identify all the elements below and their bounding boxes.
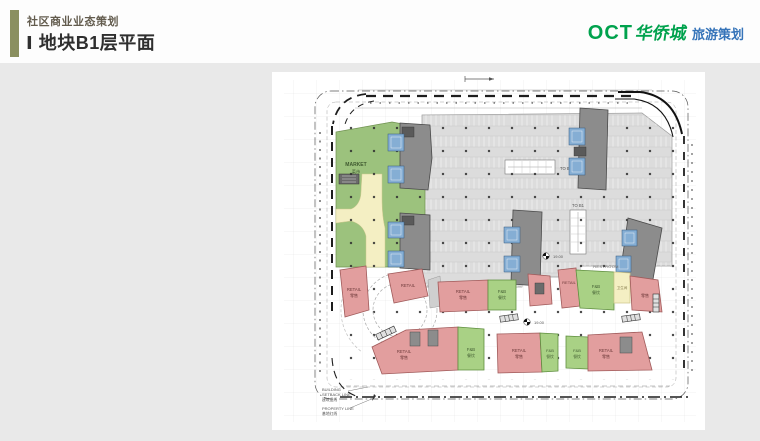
setback-line-label-cn: 建筑退线 — [322, 397, 337, 402]
logo-suffix-text: 旅游策划 — [692, 24, 744, 43]
retail-label-en: RETAIL — [562, 280, 576, 285]
retail-parcel — [497, 333, 542, 373]
retail-label-cn: 零售 — [459, 294, 467, 300]
fnb-label-en: F&B — [573, 348, 581, 353]
fnb-label-en: F&B — [467, 347, 475, 352]
parcel-row-lower: RETAIL 零售 F&B 餐饮 RETAIL 零售 F&B 餐饮 F&B 餐饮… — [372, 327, 652, 374]
retail-label-cn: 零售 — [641, 292, 649, 298]
retail-label-en: RETAIL — [401, 283, 416, 288]
retail-label-en: RETAIL — [456, 289, 471, 294]
oct-logo: OCT 华侨城 旅游策划 — [588, 19, 744, 45]
fnb-label-en: F&B — [498, 289, 506, 294]
fnb-label-en: F&B — [592, 284, 600, 289]
retail-label-en: RETAIL — [512, 348, 527, 353]
property-line-label: PROPERTY LINE — [322, 406, 354, 411]
floor-plan: TO B1 TO B1 MARKET 菜市 — [270, 70, 705, 435]
retail-label-en: RETAIL — [347, 287, 362, 292]
property-line-label-cn: 基地红线 — [322, 411, 337, 416]
parcel-core — [535, 283, 544, 294]
fnb-label-cn: 餐饮 — [546, 354, 554, 359]
slide-eyebrow: 社区商业业态策划 — [27, 13, 119, 29]
parcel-core — [620, 337, 632, 353]
elevation-label: 19.00 — [553, 254, 564, 259]
restroom-label-en: RESTROOM — [593, 264, 619, 269]
fnb-label-cn: 餐饮 — [498, 294, 506, 300]
elevation-marker: 19.00 — [524, 319, 545, 325]
floor-plan-svg: TO B1 TO B1 MARKET 菜市 — [270, 70, 705, 435]
fnb-label-cn: 餐饮 — [467, 352, 475, 358]
elevation-marker: 19.00 — [543, 253, 564, 259]
parcel-core — [410, 332, 420, 346]
restroom-label-cn: 卫生间 — [617, 285, 628, 290]
page-title: Ⅰ 地块B1层平面 — [26, 29, 155, 55]
fnb-label-en: F&B — [546, 348, 554, 353]
escalator-icon — [653, 294, 659, 312]
header-band: 社区商业业态策划 Ⅰ 地块B1层平面 OCT 华侨城 旅游策划 — [0, 0, 760, 63]
parcel-core — [428, 330, 438, 346]
accent-bar — [10, 10, 19, 57]
logo-oct-text: OCT — [588, 22, 633, 45]
fnb-label-cn: 餐饮 — [592, 289, 600, 295]
retail-label-cn: 零售 — [350, 292, 358, 298]
elevation-label: 19.00 — [534, 320, 545, 325]
retail-label-cn: 零售 — [515, 353, 523, 359]
retail-label-cn: 零售 — [602, 353, 610, 359]
retail-label-en: RETAIL — [599, 348, 614, 353]
logo-brand-text: 华侨城 — [634, 19, 689, 44]
fnb-label-cn: 餐饮 — [573, 354, 581, 359]
retail-label-en: RETAIL — [397, 349, 412, 354]
slide: { "header": { "eyebrow": "社区商业业态策划", "ti… — [0, 0, 760, 441]
retail-label-cn: 零售 — [400, 354, 408, 360]
setback-line-label-2: SETBACK LINE — [322, 392, 351, 397]
